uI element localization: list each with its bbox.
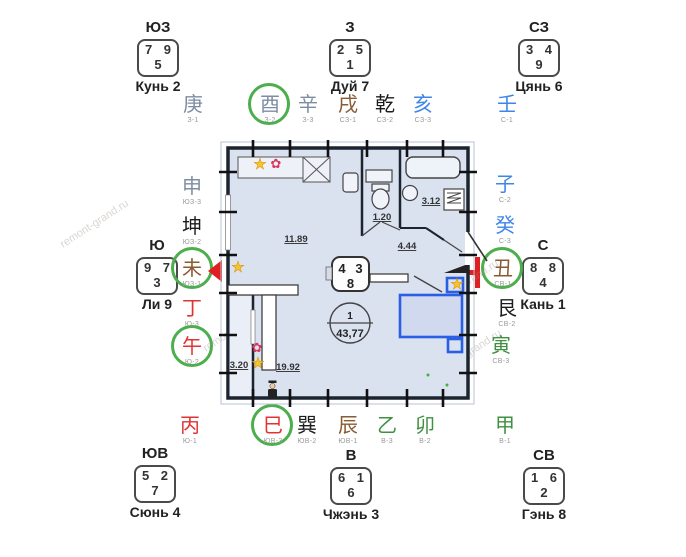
mountain-sector-label: С-1: [485, 117, 529, 124]
washbasin: [366, 170, 392, 182]
mountain-ren: 壬 С-1: [485, 94, 529, 124]
bed-blue: [400, 295, 462, 337]
floorplan-svg: 11.89 1.20 3.12 4.44 19.92 3.20 4 3 8 1 …: [210, 140, 496, 408]
star-number: 7: [136, 484, 174, 498]
mountain-sector-label: Ю-1: [168, 438, 212, 445]
direction-label: СВ: [499, 448, 589, 465]
corner-box-sw: ЮЗ 79 5 Кунь 2: [113, 20, 203, 94]
star-numbers-box: 88 4: [522, 257, 564, 295]
mountain-sector-label: В-1: [483, 438, 527, 445]
center-star-number: 3: [355, 261, 362, 276]
star-number: 2: [337, 43, 344, 57]
bath-sink: [403, 186, 418, 201]
mountain-ding: 丁 Ю-3: [170, 298, 214, 328]
star-number: 5: [356, 43, 363, 57]
corner-box-e: В 61 6 Чжэнь 3: [306, 448, 396, 522]
corner-box-se: ЮВ 52 7 Сюнь 4: [110, 446, 200, 520]
feng-shui-floorplan-chart: ЮЗ 79 5 Кунь 2 З 25 1 Дуй 7 СЗ 34 9 Цянь…: [0, 0, 686, 557]
bathtub: [406, 157, 460, 178]
mountain-char: 亥: [401, 94, 445, 114]
toilet-bowl: [372, 189, 389, 209]
beam: [370, 274, 408, 282]
mountain-sector-label: В-2: [403, 438, 447, 445]
sink: [343, 173, 358, 192]
mountain-sector-label: ЮЗ-1: [170, 281, 214, 288]
star-numbers-box: 25 1: [329, 39, 371, 77]
direction-label: З: [305, 20, 395, 37]
mountain-char: 卯: [403, 415, 447, 435]
star-number: 6: [550, 471, 557, 485]
star-number: 1: [357, 471, 364, 485]
star-number: 4: [545, 43, 552, 57]
corner-box-w: З 25 1 Дуй 7: [305, 20, 395, 94]
mountain-sector-label: Ю-2: [170, 359, 214, 366]
mountain-hai: 亥 СЗ-3: [401, 94, 445, 124]
mountain-sector-label: З-3: [286, 117, 330, 124]
trigram-name: Гэнь 8: [499, 507, 589, 522]
mountain-mao: 卯 В-2: [403, 415, 447, 445]
mountain-jia: 甲 В-1: [483, 415, 527, 445]
star-number: 1: [331, 58, 369, 72]
direction-label: В: [306, 448, 396, 465]
direction-label: ЮВ: [110, 446, 200, 463]
star-number: 4: [524, 276, 562, 290]
mountain-sector-label: З-1: [171, 117, 215, 124]
mountain-char: 丁: [170, 298, 214, 318]
center-box-tab: [326, 267, 332, 280]
flower-icon: ✿: [271, 156, 282, 171]
center-star-number: 8: [347, 276, 354, 291]
green-dot: [446, 384, 449, 387]
mountain-char: 辰: [326, 415, 370, 435]
mountain-xin: 辛 З-3: [286, 94, 330, 124]
mountain-sector-label: СЗ-3: [401, 117, 445, 124]
mountain-char: 甲: [483, 415, 527, 435]
star-number: 9: [520, 58, 558, 72]
mountain-sector-label: ЮЗ-2: [170, 239, 214, 246]
mountain-sector-label: Ю-3: [170, 321, 214, 328]
duct-wall: [228, 285, 298, 295]
balcony-area: [230, 296, 254, 396]
star-number: 6: [332, 486, 370, 500]
apartment-area: 43,77: [336, 328, 364, 340]
star-number: 8: [549, 261, 556, 275]
direction-label: ЮЗ: [113, 20, 203, 37]
star-number: 9: [144, 261, 151, 275]
mountain-sector-label: ЮВ-1: [326, 438, 370, 445]
direction-label: СЗ: [494, 20, 584, 37]
mountain-char: 巽: [285, 415, 329, 435]
mountain-char: 辛: [286, 94, 330, 114]
room-area-bath: 3.12: [422, 196, 441, 207]
mountain-kun: 坤 ЮЗ-2: [170, 216, 214, 246]
corner-box-nw: СЗ 34 9 Цянь 6: [494, 20, 584, 94]
star-number: 5: [142, 469, 149, 483]
star-number: 2: [525, 486, 563, 500]
trigram-name: Чжэнь 3: [306, 507, 396, 522]
star-number: 2: [161, 469, 168, 483]
star-numbers-box: 79 5: [137, 39, 179, 77]
star-numbers-box: 52 7: [134, 465, 176, 503]
star-number: 7: [163, 261, 170, 275]
center-star-number: 4: [338, 261, 346, 276]
mountain-char: 丙: [168, 415, 212, 435]
star-number: 9: [164, 43, 171, 57]
mountain-bing: 丙 Ю-1: [168, 415, 212, 445]
balcony-window: [251, 310, 255, 344]
room-area-balcony: 3.20: [230, 360, 249, 371]
flower-icon: ✿: [252, 340, 263, 355]
star-number: 5: [139, 58, 177, 72]
room-area-main: 11.89: [284, 234, 307, 245]
star-number: 8: [530, 261, 537, 275]
entry-opening: [465, 232, 471, 265]
star-number: 3: [526, 43, 533, 57]
star-icon: ★: [253, 156, 266, 173]
washing-machine: [444, 189, 464, 210]
star-numbers-box: 16 2: [523, 467, 565, 505]
mountain-chen: 辰 ЮВ-1: [326, 415, 370, 445]
green-dot: [427, 374, 430, 377]
star-numbers-box: 34 9: [518, 39, 560, 77]
trigram-name: Сюнь 4: [110, 505, 200, 520]
mountain-sector-label: ЮВ-2: [285, 438, 329, 445]
star-number: 1: [531, 471, 538, 485]
room-area-hall: 4.44: [398, 241, 417, 252]
star-icon: ★: [251, 355, 264, 372]
room-area-lower: 19.92: [276, 362, 300, 373]
star-icon: ★: [450, 276, 463, 293]
mountain-xun: 巽 ЮВ-2: [285, 415, 329, 445]
mountain-char: 坤: [170, 216, 214, 236]
star-number: 7: [145, 43, 152, 57]
mountain-geng: 庚 З-1: [171, 94, 215, 124]
window: [226, 195, 231, 250]
mountain-char: 壬: [485, 94, 529, 114]
mountain-char: 申: [170, 176, 214, 196]
mountain-shen: 申 ЮЗ-3: [170, 176, 214, 206]
mountain-char: 庚: [171, 94, 215, 114]
apartment-number: 1: [347, 311, 353, 322]
room-area-toilet: 1.20: [373, 212, 392, 223]
star-numbers-box: 61 6: [330, 467, 372, 505]
star-number: 6: [338, 471, 345, 485]
mountain-sector-label: ЮЗ-3: [170, 199, 214, 206]
corner-box-ne: СВ 16 2 Гэнь 8: [499, 448, 589, 522]
star-icon: ★: [231, 259, 244, 276]
